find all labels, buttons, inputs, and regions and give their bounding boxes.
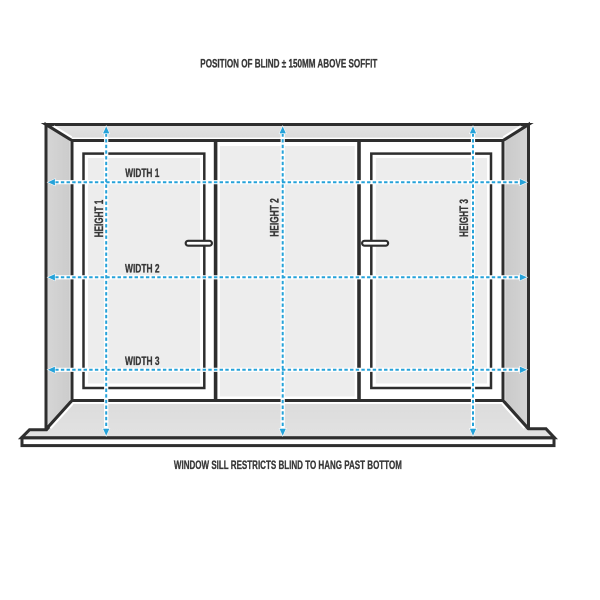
svg-text:HEIGHT 3: HEIGHT 3 <box>459 199 471 237</box>
svg-text:WINDOW SILL RESTRICTS BLIND TO: WINDOW SILL RESTRICTS BLIND TO HANG PAST… <box>174 460 402 472</box>
svg-text:WIDTH 2: WIDTH 2 <box>125 264 160 276</box>
svg-text:WIDTH 1: WIDTH 1 <box>125 168 159 180</box>
svg-text:POSITION OF BLIND ± 150MM ABOV: POSITION OF BLIND ± 150MM ABOVE SOFFIT <box>200 58 377 70</box>
svg-text:HEIGHT 1: HEIGHT 1 <box>94 199 106 237</box>
svg-text:HEIGHT 2: HEIGHT 2 <box>269 198 281 237</box>
svg-text:WIDTH 3: WIDTH 3 <box>125 356 160 368</box>
